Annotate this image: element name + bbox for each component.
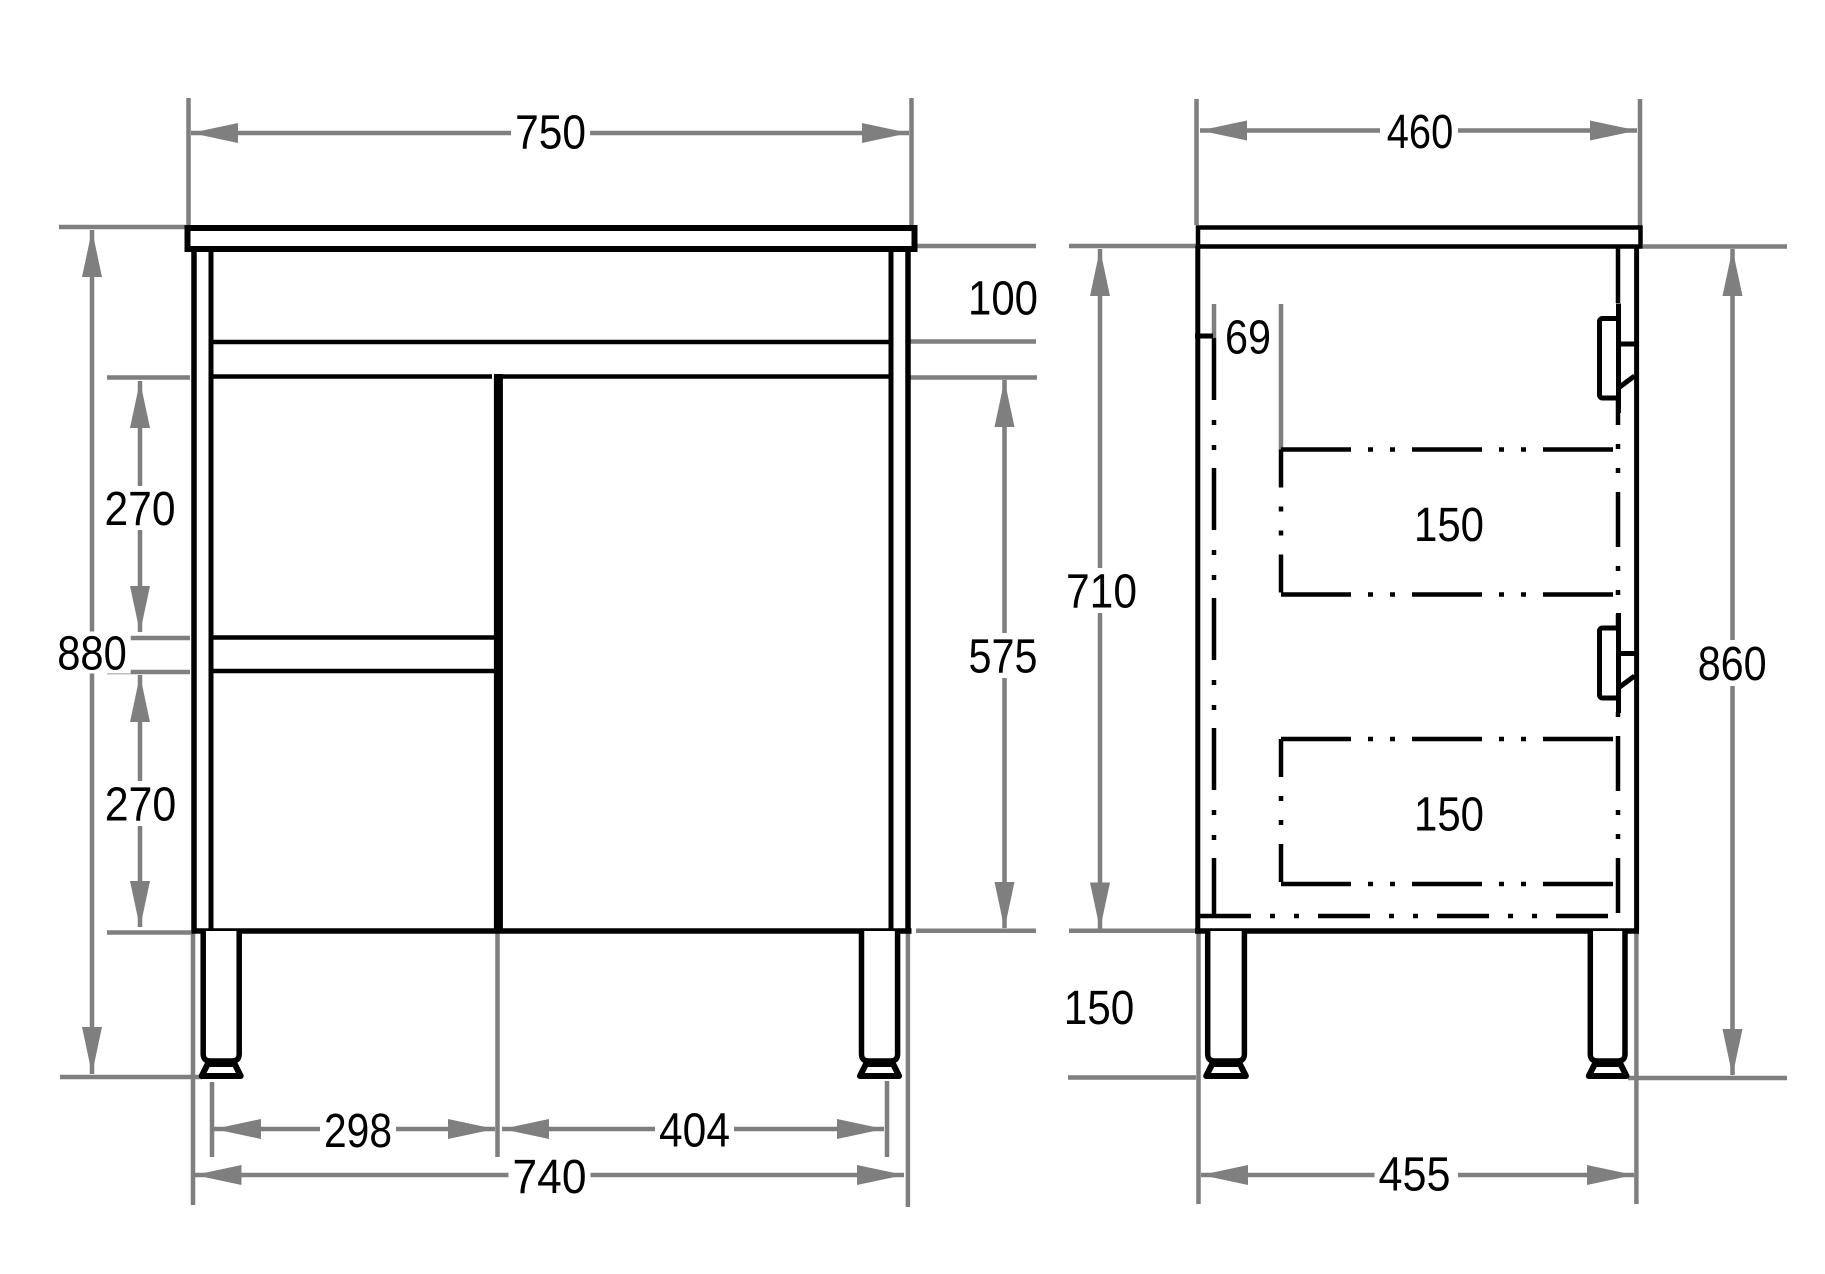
svg-text:740: 740 (513, 1151, 587, 1204)
svg-text:710: 710 (1066, 566, 1137, 619)
svg-text:150: 150 (1414, 499, 1484, 552)
svg-text:100: 100 (968, 273, 1038, 326)
svg-text:750: 750 (515, 107, 586, 160)
svg-text:860: 860 (1698, 638, 1767, 691)
svg-text:298: 298 (324, 1105, 392, 1158)
svg-text:150: 150 (1064, 982, 1135, 1035)
svg-text:575: 575 (969, 631, 1038, 684)
svg-text:69: 69 (1225, 312, 1271, 365)
svg-text:150: 150 (1414, 789, 1484, 842)
svg-text:880: 880 (57, 628, 127, 681)
svg-text:460: 460 (1387, 106, 1454, 159)
svg-text:270: 270 (105, 483, 176, 536)
svg-text:455: 455 (1379, 1149, 1451, 1202)
svg-text:404: 404 (659, 1105, 730, 1158)
svg-text:270: 270 (105, 779, 177, 832)
